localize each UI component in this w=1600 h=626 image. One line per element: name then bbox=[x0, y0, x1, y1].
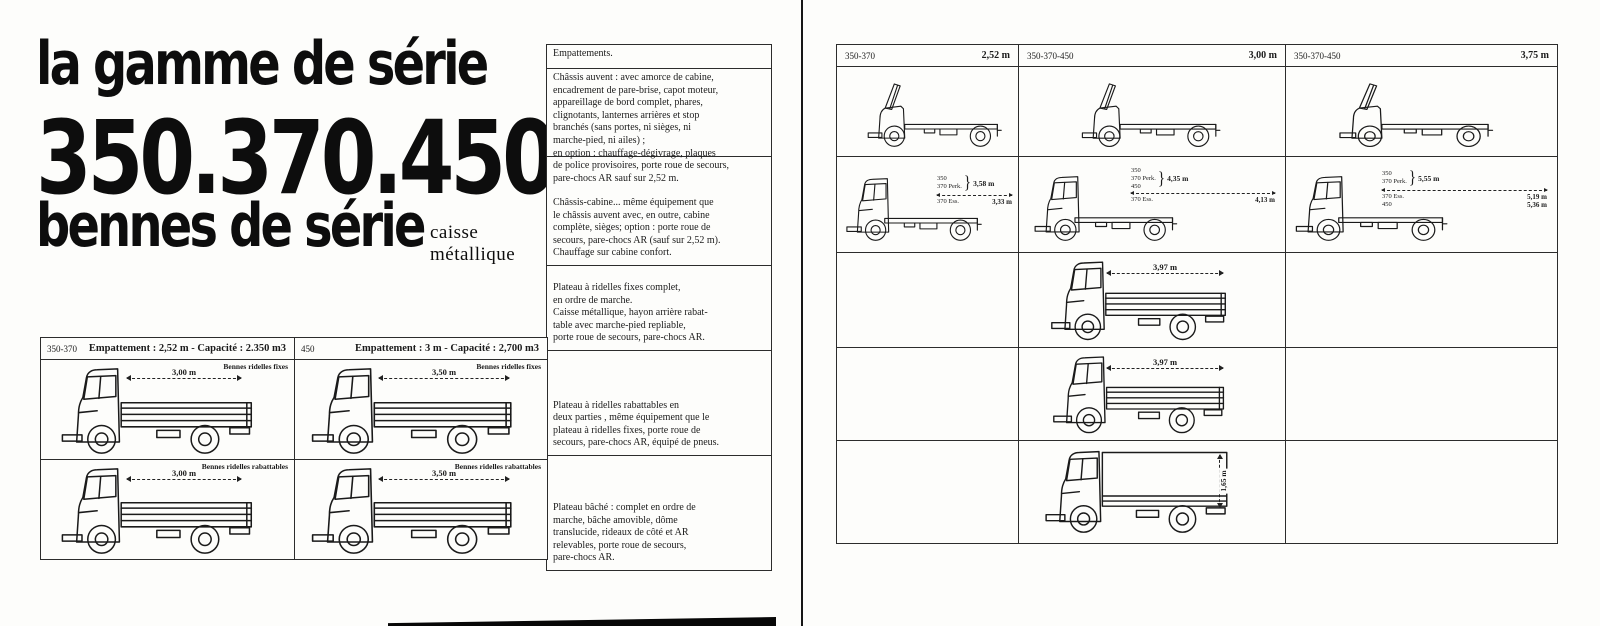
spec-column: Empattements. Châssis auvent : avec amor… bbox=[546, 44, 772, 571]
cell-auvent-col1 bbox=[837, 67, 1019, 157]
truck-illustration-chassis-auvent bbox=[863, 78, 1013, 150]
length-value: 3,33 m bbox=[992, 198, 1012, 206]
cell-cabine-col1: 350 370 Perk. } 3,58 m 370 Ess. 3,33 m bbox=[837, 157, 1019, 253]
dimension-label: 3,50 m bbox=[379, 368, 509, 377]
length-value: 4,35 m bbox=[1167, 174, 1188, 183]
spec-cell-plateau-rabattables: Plateau à ridelles rabattables en deux p… bbox=[547, 351, 771, 456]
model-variant: 370 Ess. bbox=[937, 198, 959, 206]
model-label: 350-370 bbox=[845, 51, 875, 61]
spec-cell-plateau-fixes: Plateau à ridelles fixes complet, en ord… bbox=[547, 266, 771, 351]
cell-plateau-bache-col2: 1,65 m bbox=[1019, 441, 1286, 543]
length-value: 5,36 m bbox=[1527, 201, 1547, 209]
cell-cabine-col3: 350 370 Perk. } 5,55 m 370 Ess. 5,19 m 4… bbox=[1286, 157, 1557, 253]
cell-plateau-rabattables-col2: 3,97 m bbox=[1019, 348, 1286, 441]
dimension-label: 3,00 m bbox=[127, 368, 241, 377]
wheelbase-capacity-label: Empattement : 3 m - Capacité : 2,700 m3 bbox=[355, 343, 541, 354]
page-gutter-divider bbox=[801, 0, 803, 626]
dimension-label: 3,00 m bbox=[127, 469, 241, 478]
model-label: 350-370-450 bbox=[1294, 51, 1341, 61]
dimension-label: 3,97 m bbox=[1107, 358, 1223, 367]
length-value: 3,58 m bbox=[973, 179, 994, 188]
dimension-arrow bbox=[127, 479, 241, 480]
brochure-spread: la gamme de série 350.370.450 bennes de … bbox=[0, 0, 1600, 626]
bennes-table: 350-370 Empattement : 2,52 m - Capacité … bbox=[40, 337, 548, 560]
grid-header-col2: 350-370-450 3,00 m bbox=[1019, 45, 1286, 67]
bed-length-dimension: 3,50 m bbox=[379, 368, 509, 379]
model-label: 450 bbox=[301, 344, 315, 354]
truck-illustration-chassis-auvent bbox=[1334, 78, 1506, 150]
annotation-extra-row: 450 5,36 m bbox=[1382, 201, 1547, 209]
spec-cell-chassis-auvent: Châssis auvent : avec amorce de cabine, … bbox=[547, 69, 771, 157]
bed-length-dimension: 3,00 m bbox=[127, 368, 241, 379]
model-variant: 370 Ess. bbox=[1131, 196, 1153, 204]
cell-empty bbox=[837, 253, 1019, 348]
bed-length-dimension: 3,97 m bbox=[1107, 358, 1223, 369]
cell-empty bbox=[1286, 441, 1557, 543]
cell-empty bbox=[1286, 253, 1557, 348]
length-annotation: 350 370 Perk. } 5,55 m 370 Ess. 5,19 m 4… bbox=[1382, 169, 1547, 210]
model-variant: 350 bbox=[1131, 167, 1156, 175]
length-annotation: 350 370 Perk. 450 } 4,35 m 370 Ess. 4,13… bbox=[1131, 167, 1275, 205]
length-value: 5,19 m bbox=[1527, 193, 1547, 201]
table-row-rabattables: Bennes ridelles rabattables 3,00 m bbox=[41, 460, 294, 559]
annotation-extra-row: 370 Ess. 5,19 m bbox=[1382, 193, 1547, 201]
dimension-label: 3,50 m bbox=[379, 469, 509, 478]
bed-length-dimension: 3,00 m bbox=[127, 469, 241, 480]
spec-cell-chassis-cabine: Châssis-cabine... même équipement que le… bbox=[547, 157, 771, 266]
brace-glyph: } bbox=[1158, 168, 1165, 190]
box-height-dimension: 1,65 m bbox=[1219, 455, 1220, 507]
page-title-line3: bennes de série bbox=[36, 192, 424, 261]
dimension-arrow bbox=[1382, 190, 1547, 191]
dimension-arrow bbox=[127, 378, 241, 379]
model-variant: 450 bbox=[1131, 183, 1156, 191]
dimension-arrow bbox=[1107, 273, 1223, 274]
page-title-line1: la gamme de série bbox=[36, 30, 486, 99]
annotation-grouped-models: 350 370 Perk. } 5,55 m bbox=[1382, 169, 1547, 187]
truck-illustration-plateau-bache bbox=[1041, 443, 1237, 537]
model-variant: 370 Perk. bbox=[1131, 175, 1156, 183]
bennes-column-header: 350-370 Empattement : 2,52 m - Capacité … bbox=[41, 338, 294, 360]
spec-cell-plateau-bache: Plateau bâché : complet en ordre de marc… bbox=[547, 456, 771, 570]
spec-header: Empattements. bbox=[547, 45, 771, 69]
model-variant: 370 Ess. bbox=[1382, 193, 1404, 201]
cell-auvent-col2 bbox=[1019, 67, 1286, 157]
model-variant: 450 bbox=[1382, 201, 1392, 209]
cell-empty bbox=[837, 348, 1019, 441]
scan-page-edge bbox=[388, 617, 776, 626]
model-variant: 350 bbox=[937, 175, 962, 183]
dimension-arrow bbox=[1131, 193, 1275, 194]
dimension-arrow bbox=[937, 195, 1012, 196]
page-title-subtitle: caisse métallique bbox=[430, 222, 515, 266]
bennes-column-350-370: 350-370 Empattement : 2,52 m - Capacité … bbox=[41, 338, 294, 559]
table-row-fixes: Bennes ridelles fixes 3,50 m bbox=[295, 360, 547, 460]
bennes-column-header: 450 Empattement : 3 m - Capacité : 2,700… bbox=[295, 338, 547, 360]
cell-cabine-col2: 350 370 Perk. 450 } 4,35 m 370 Ess. 4,13… bbox=[1019, 157, 1286, 253]
brace-glyph: } bbox=[1409, 167, 1416, 189]
wheelbase-label: 3,75 m bbox=[1521, 50, 1549, 61]
model-label: 350-370 bbox=[47, 344, 77, 354]
cell-auvent-col3 bbox=[1286, 67, 1557, 157]
bennes-column-450: 450 Empattement : 3 m - Capacité : 2,700… bbox=[294, 338, 547, 559]
model-variant: 370 Perk. bbox=[1382, 178, 1407, 186]
length-value: 5,55 m bbox=[1418, 174, 1439, 183]
cell-empty bbox=[837, 441, 1019, 543]
dimension-arrow bbox=[379, 378, 509, 379]
dimension-label: 1,65 m bbox=[1219, 468, 1228, 493]
wheelbase-label: 2,52 m bbox=[982, 50, 1010, 61]
grid-header-col3: 350-370-450 3,75 m bbox=[1286, 45, 1557, 67]
annotation-extra-row: 370 Ess. 4,13 m bbox=[1131, 196, 1275, 204]
length-value: 4,13 m bbox=[1255, 196, 1275, 204]
brace-glyph: } bbox=[964, 172, 971, 194]
wheelbase-capacity-label: Empattement : 2,52 m - Capacité : 2.350 … bbox=[89, 343, 288, 354]
cell-empty bbox=[1286, 348, 1557, 441]
table-row-fixes: Bennes ridelles fixes 3,00 m bbox=[41, 360, 294, 460]
table-row-rabattables: Bennes ridelles rabattables 3,50 m bbox=[295, 460, 547, 559]
truck-illustration-chassis-auvent bbox=[1077, 78, 1232, 150]
dimension-arrow bbox=[379, 479, 509, 480]
model-variant: 370 Perk. bbox=[937, 183, 962, 191]
model-label: 350-370-450 bbox=[1027, 51, 1074, 61]
wheelbase-label: 3,00 m bbox=[1249, 50, 1277, 61]
model-variant: 350 bbox=[1382, 170, 1407, 178]
bed-length-dimension: 3,50 m bbox=[379, 469, 509, 480]
dimension-arrow bbox=[1107, 368, 1223, 369]
annotation-grouped-models: 350 370 Perk. 450 } 4,35 m bbox=[1131, 167, 1275, 190]
bed-length-dimension: 3,97 m bbox=[1107, 263, 1223, 274]
annotation-extra-row: 370 Ess. 3,33 m bbox=[937, 198, 1012, 206]
dimension-label: 3,97 m bbox=[1107, 263, 1223, 272]
variants-grid: 350-370 2,52 m 350-370-450 3,00 m 350-37… bbox=[836, 44, 1558, 544]
grid-header-col1: 350-370 2,52 m bbox=[837, 45, 1019, 67]
length-annotation: 350 370 Perk. } 3,58 m 370 Ess. 3,33 m bbox=[937, 174, 1012, 206]
cell-plateau-fixes-col2: 3,97 m bbox=[1019, 253, 1286, 348]
annotation-grouped-models: 350 370 Perk. } 3,58 m bbox=[937, 174, 1012, 192]
